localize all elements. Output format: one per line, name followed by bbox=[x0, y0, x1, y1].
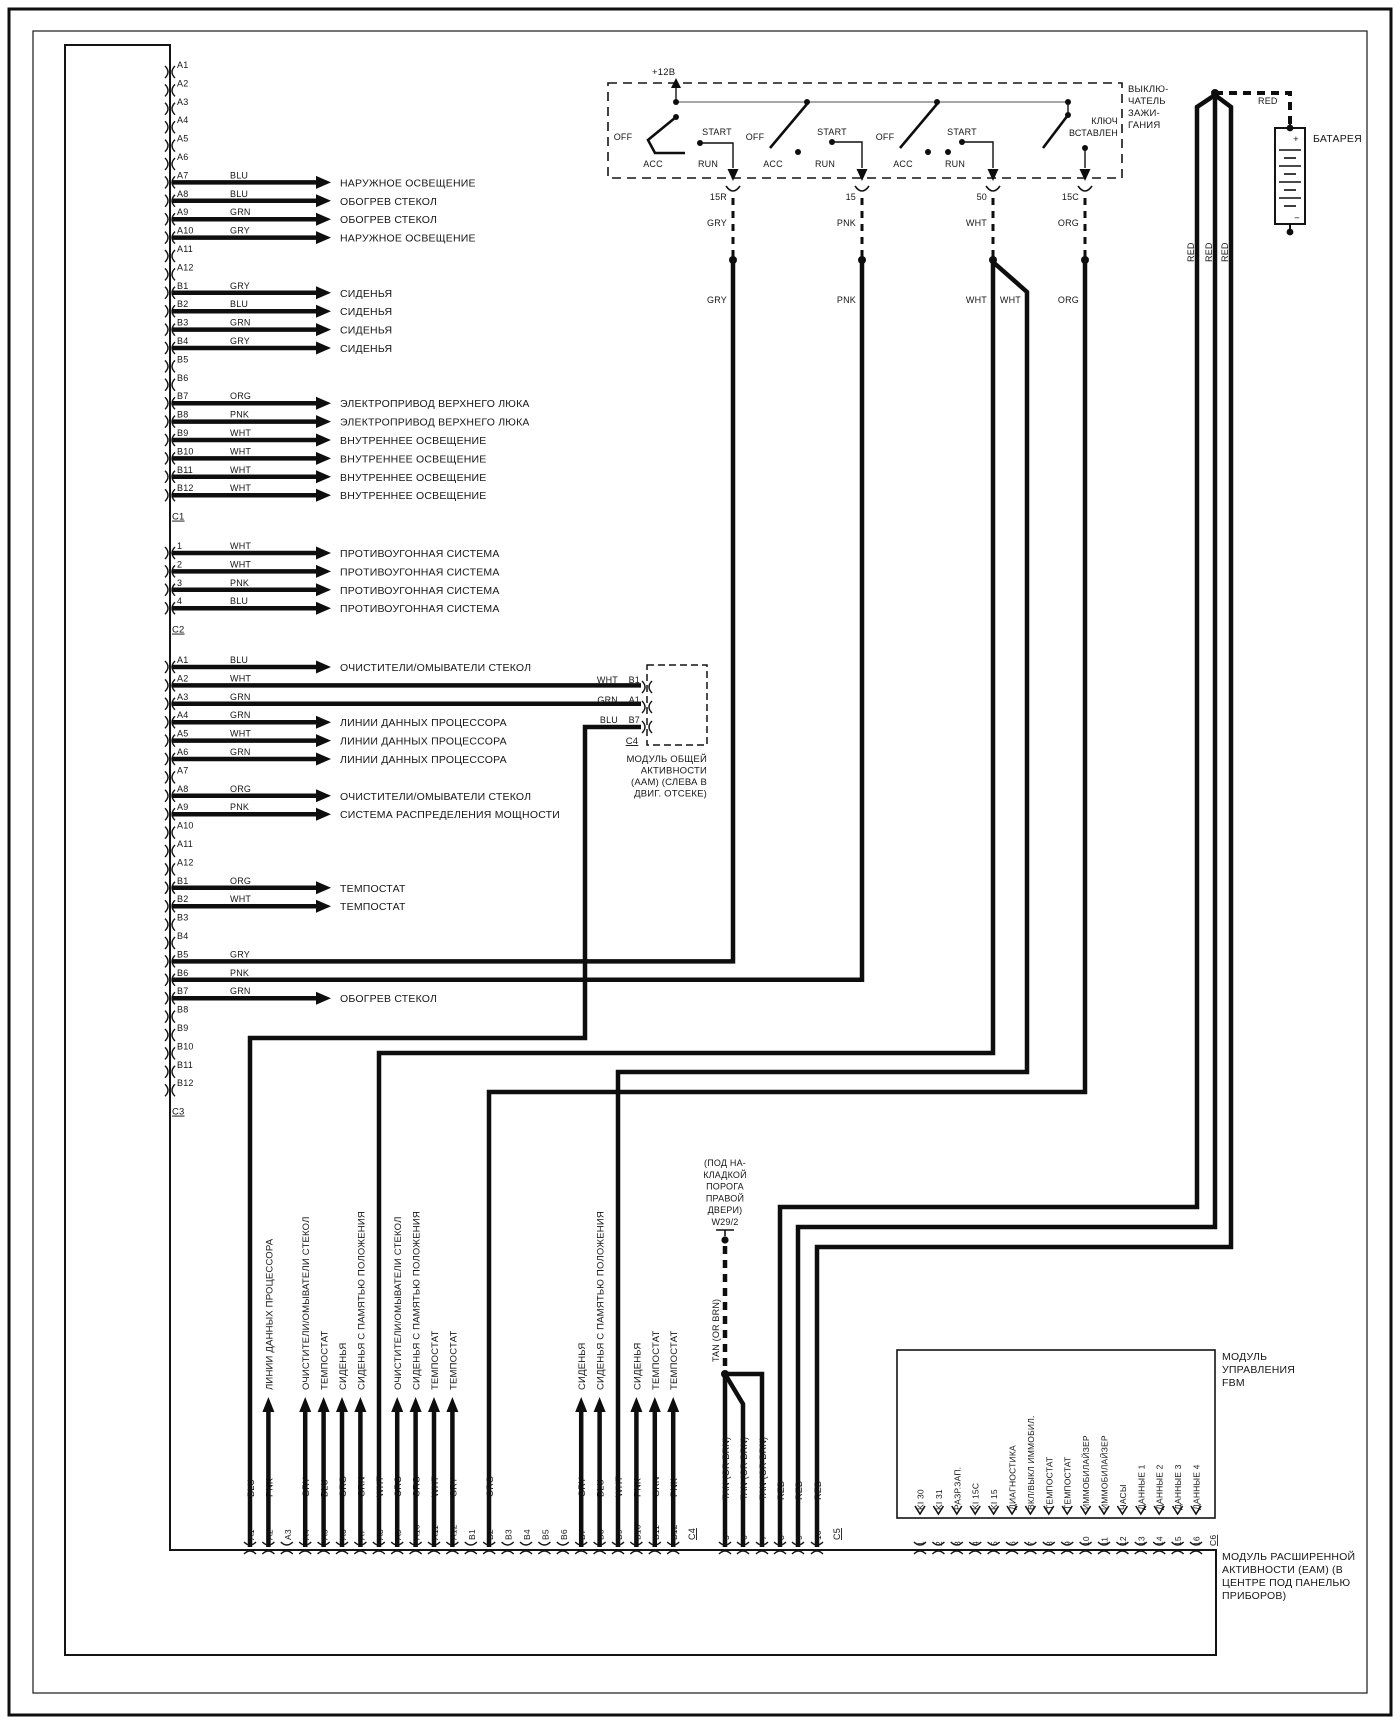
pin-id: B10 bbox=[177, 446, 194, 456]
pin-bracket bbox=[165, 158, 168, 170]
circuit-label: ОЧИСТИТЕЛИ/ОМЫВАТЕЛИ СТЕКОЛ bbox=[340, 791, 531, 803]
pin-id: B6 bbox=[559, 1529, 569, 1540]
circuit-label: ЭЛЕКТРОПРИВОД ВЕРХНЕГО ЛЮКА bbox=[340, 417, 530, 429]
pin-id: 9 bbox=[794, 1535, 804, 1540]
eam-module-label: МОДУЛЬ РАСШИРЕННОЙ bbox=[1222, 1550, 1355, 1563]
terminal-arrow-icon bbox=[728, 169, 739, 181]
pin-bracket bbox=[165, 416, 168, 428]
circuit-label: ОБОГРЕВ СТЕКОЛ bbox=[340, 214, 437, 226]
junction-dot bbox=[721, 1236, 728, 1243]
pin-id: A1 bbox=[629, 695, 640, 705]
pin-bracket bbox=[172, 121, 175, 133]
wire-color-label: RED bbox=[813, 1480, 823, 1500]
fbm-pin-label: ТЕМПОСТАТ bbox=[1063, 1457, 1073, 1510]
pin-id: B3 bbox=[504, 1529, 514, 1540]
pin-id: B5 bbox=[540, 1529, 550, 1540]
arrowhead-icon bbox=[316, 213, 331, 226]
pin-id: B10 bbox=[177, 1041, 194, 1051]
terminal-arrow-icon bbox=[857, 169, 868, 181]
pin-id: B2 bbox=[485, 1529, 495, 1540]
terminal-id: 15R bbox=[710, 192, 727, 202]
junction-dot bbox=[858, 256, 866, 264]
pin-id: B8 bbox=[177, 1005, 188, 1015]
pin-bracket bbox=[165, 140, 168, 152]
wire-color-label: PNK bbox=[230, 410, 249, 420]
battery-label: БАТАРЕЯ bbox=[1313, 133, 1362, 145]
pin-id: A5 bbox=[177, 134, 188, 144]
junction-dot bbox=[1065, 112, 1071, 118]
connector-id: C4 bbox=[626, 736, 639, 747]
pin-bracket bbox=[165, 324, 168, 336]
red-route-wire bbox=[780, 95, 1215, 1547]
pin-bracket bbox=[172, 1066, 175, 1078]
pin-id: B2 bbox=[177, 894, 188, 904]
switch-position-label: START bbox=[817, 127, 847, 137]
pin-bracket bbox=[914, 1551, 926, 1554]
pin-id: B2 bbox=[177, 299, 188, 309]
pin-bracket bbox=[165, 919, 168, 931]
wire-color-label: BLU bbox=[600, 715, 618, 725]
terminal-id: 15C bbox=[1062, 192, 1079, 202]
pin-bracket bbox=[667, 1551, 679, 1554]
switch-position-label: OFF bbox=[614, 132, 633, 142]
arrowhead-icon bbox=[410, 1397, 422, 1412]
arrowhead-icon bbox=[316, 808, 331, 821]
switch-position-label: RUN bbox=[698, 159, 718, 169]
pin-bracket bbox=[165, 698, 168, 710]
arrowhead-icon bbox=[316, 286, 331, 299]
eam-module-label: АКТИВНОСТИ (ЕАМ) (В bbox=[1222, 1564, 1343, 1576]
pin-bracket bbox=[165, 900, 168, 912]
circuit-label: ВНУТРЕННЕЕ ОСВЕЩЕНИЕ bbox=[340, 435, 487, 447]
arrowhead-icon bbox=[316, 397, 331, 410]
switch-lever bbox=[648, 117, 685, 153]
arrowhead-icon bbox=[318, 1397, 330, 1412]
pin-bracket bbox=[165, 360, 168, 372]
pin-bracket bbox=[557, 1551, 569, 1554]
pin-bracket bbox=[1043, 1551, 1055, 1554]
pin-bracket bbox=[165, 716, 168, 728]
fbm-pin-label: ИММОБИЛАЙЗЕР bbox=[1080, 1435, 1091, 1510]
pin-id: 1 bbox=[177, 541, 182, 551]
pin-bracket bbox=[1061, 1551, 1073, 1554]
aam-module-label: МОДУЛЬ ОБЩЕЙ bbox=[626, 753, 707, 765]
ignition-title: ЧАТЕЛЬ bbox=[1128, 96, 1166, 107]
pin-id: B3 bbox=[177, 913, 188, 923]
wire-color-label: GRN bbox=[230, 207, 251, 217]
fbm-pin-label: ДИАГНОСТИКА bbox=[1008, 1445, 1018, 1510]
junction-dot bbox=[795, 149, 801, 155]
pin-id: B1 bbox=[629, 675, 640, 685]
w29-label: ПОРОГА bbox=[706, 1182, 744, 1192]
pin-id: B1 bbox=[467, 1529, 477, 1540]
pin-bracket bbox=[262, 1551, 274, 1554]
junction-dot bbox=[804, 99, 810, 105]
switch-position-label: ACC bbox=[643, 159, 663, 169]
wire-color-label: WHT bbox=[1000, 295, 1021, 305]
wire-color-label: GRY bbox=[230, 336, 250, 346]
wire-color-label: ORG bbox=[230, 391, 251, 401]
switch-lever bbox=[900, 104, 937, 148]
pin-bracket bbox=[165, 121, 168, 133]
wire-color-label: RED bbox=[1220, 242, 1230, 262]
pin-bracket bbox=[465, 1542, 477, 1545]
pin-id: B1 bbox=[177, 281, 188, 291]
pin-id: A9 bbox=[177, 802, 188, 812]
wire-color-label: ORG bbox=[1058, 295, 1079, 305]
circuit-label: ВНУТРЕННЕЕ ОСВЕЩЕНИЕ bbox=[340, 453, 487, 465]
pin-bracket bbox=[969, 1551, 981, 1554]
pin-bracket bbox=[165, 250, 168, 262]
pin-id: A1 bbox=[177, 60, 188, 70]
pin-bracket bbox=[165, 397, 168, 409]
key-switch-label: ВСТАВЛЕН bbox=[1069, 128, 1118, 138]
w29-label: W29/2 bbox=[711, 1217, 738, 1227]
arrowhead-icon bbox=[262, 1397, 274, 1412]
arrowhead-icon bbox=[316, 547, 331, 560]
pin-bracket bbox=[299, 1551, 311, 1554]
switch-contact-wire bbox=[832, 142, 862, 168]
pin-bracket bbox=[165, 434, 168, 446]
w29-label: ДВЕРИ) bbox=[708, 1205, 743, 1215]
wire-color-label: BLU bbox=[230, 170, 248, 180]
pin-bracket bbox=[165, 342, 168, 354]
fbm-pin-label: РАЗР.ЗАП. bbox=[952, 1467, 962, 1510]
arrowhead-icon bbox=[316, 176, 331, 189]
circuit-label: ПРОТИВОУГОННАЯ СИСТЕМА bbox=[340, 548, 500, 560]
wire-color-label: RED bbox=[776, 1480, 786, 1500]
pin-bracket bbox=[1172, 1551, 1184, 1554]
wire-color-label: WHT bbox=[230, 428, 251, 438]
junction-dot bbox=[925, 149, 931, 155]
pin-bracket bbox=[281, 1551, 293, 1554]
pin-bracket bbox=[165, 305, 168, 317]
pin-id: B11 bbox=[177, 1060, 193, 1070]
pin-id: B5 bbox=[177, 949, 188, 959]
arrowhead-icon bbox=[336, 1397, 348, 1412]
route-wire bbox=[172, 260, 862, 980]
pin-bracket bbox=[172, 66, 175, 78]
circuit-label: ЛИНИИ ДАННЫХ ПРОЦЕССОРА bbox=[340, 717, 507, 729]
pin-bracket bbox=[165, 1084, 168, 1096]
pin-bracket bbox=[630, 1551, 642, 1554]
connector-id: C3 bbox=[172, 1107, 185, 1118]
wiring-diagram-canvas: A1A2A3A4A5A6A7BLUНАРУЖНОЕ ОСВЕЩЕНИЕA8BLU… bbox=[0, 0, 1400, 1724]
fbm-pin-label: KI 31 bbox=[934, 1489, 944, 1510]
pin-bracket bbox=[354, 1551, 366, 1554]
w29-label: КЛАДКОЙ bbox=[703, 1169, 747, 1180]
pin-bracket bbox=[165, 452, 168, 464]
circuit-label: СИДЕНЬЯ С ПАМЯТЬЮ ПОЛОЖЕНИЯ bbox=[596, 1211, 607, 1390]
terminal-id: 50 bbox=[977, 192, 987, 202]
pin-bracket bbox=[1024, 1551, 1036, 1554]
switch-contact-wire bbox=[962, 142, 993, 168]
generated-diagram-layer: A1A2A3A4A5A6A7BLUНАРУЖНОЕ ОСВЕЩЕНИЕA8BLU… bbox=[165, 60, 1362, 1602]
switch-position-label: ACC bbox=[893, 159, 913, 169]
pin-id: A10 bbox=[177, 226, 194, 236]
junction-dot bbox=[729, 256, 737, 264]
pin-bracket bbox=[172, 771, 175, 783]
junction-dot bbox=[1287, 125, 1294, 132]
pin-bracket bbox=[649, 1551, 661, 1554]
pin-bracket bbox=[774, 1551, 786, 1554]
circuit-label: СИДЕНЬЯ bbox=[340, 306, 392, 318]
pin-bracket bbox=[594, 1551, 606, 1554]
red-route-wire bbox=[817, 95, 1231, 1547]
pin-bracket bbox=[165, 882, 168, 894]
pin-bracket bbox=[165, 379, 168, 391]
pin-bracket bbox=[642, 681, 645, 693]
fbm-module-box bbox=[897, 1350, 1215, 1518]
switch-position-label: OFF bbox=[746, 132, 765, 142]
pin-id: A9 bbox=[177, 207, 188, 217]
pin-id: B8 bbox=[177, 410, 188, 420]
pin-id: A11 bbox=[177, 244, 193, 254]
aam-module-label: (ААМ) (СЛЕВА В bbox=[631, 777, 707, 788]
wire-color-label: GRY bbox=[707, 218, 727, 228]
page-outer-border bbox=[9, 9, 1391, 1715]
fbm-pin-label: ДАННЫЕ 3 bbox=[1173, 1464, 1183, 1510]
connector-id: C6 bbox=[1208, 1535, 1218, 1546]
terminal-bracket bbox=[986, 186, 1000, 191]
pin-bracket bbox=[318, 1551, 330, 1554]
wire-color-label: WHT bbox=[614, 1476, 624, 1497]
wire-color-label: GRN bbox=[230, 986, 251, 996]
pin-id: A3 bbox=[177, 97, 188, 107]
pin-id: A7 bbox=[177, 765, 188, 775]
arrowhead-icon bbox=[316, 470, 331, 483]
circuit-label: СИДЕНЬЯ bbox=[338, 1343, 349, 1390]
pin-id: B9 bbox=[177, 1023, 188, 1033]
pin-bracket bbox=[165, 735, 168, 747]
pin-bracket bbox=[649, 681, 652, 693]
pin-bracket bbox=[1153, 1551, 1165, 1554]
fbm-module-label: FBM bbox=[1222, 1377, 1245, 1389]
pin-bracket bbox=[932, 1551, 944, 1554]
fbm-pin-label: ЧАСЫ bbox=[1118, 1484, 1128, 1510]
pin-bracket bbox=[165, 268, 168, 280]
wire-color-label: BLU bbox=[230, 655, 248, 665]
pin-id: 3 bbox=[177, 578, 182, 588]
circuit-label: ПРОТИВОУГОННАЯ СИСТЕМА bbox=[340, 566, 500, 578]
circuit-label: СИСТЕМА РАСПРЕДЕЛЕНИЯ МОЩНОСТИ bbox=[340, 809, 560, 821]
pin-bracket bbox=[172, 863, 175, 875]
pin-bracket bbox=[165, 287, 168, 299]
wire-color-label: TAN (OR BRN) bbox=[721, 1437, 731, 1500]
pin-bracket bbox=[165, 827, 168, 839]
pin-bracket bbox=[502, 1542, 514, 1545]
wire-color-label: TAN (OR BRN) bbox=[758, 1437, 768, 1500]
wire-color-label: WHT bbox=[230, 446, 251, 456]
w29-label: ПРАВОЙ bbox=[706, 1192, 744, 1203]
pin-id: 6 bbox=[739, 1535, 749, 1540]
pin-bracket bbox=[172, 919, 175, 931]
pin-bracket bbox=[172, 1084, 175, 1096]
pin-bracket bbox=[538, 1542, 550, 1545]
terminal-bracket bbox=[726, 186, 740, 191]
pin-bracket bbox=[165, 661, 168, 673]
arrowhead-icon bbox=[299, 1397, 311, 1412]
arrowhead-icon bbox=[316, 434, 331, 447]
pin-bracket bbox=[792, 1551, 804, 1554]
pin-id: A6 bbox=[177, 152, 188, 162]
fbm-pin-label: KI 15 bbox=[989, 1489, 999, 1510]
wire-color-label: WHT bbox=[375, 1476, 385, 1497]
pin-id: A6 bbox=[177, 747, 188, 757]
pin-bracket bbox=[373, 1551, 385, 1554]
ignition-title: ГАНИЯ bbox=[1128, 120, 1160, 131]
terminal-arrow-icon bbox=[1080, 169, 1091, 181]
pin-bracket bbox=[165, 103, 168, 115]
wire-color-label: GRY bbox=[230, 949, 250, 959]
pin-bracket bbox=[165, 937, 168, 949]
pin-bracket bbox=[642, 701, 645, 713]
arrowhead-icon bbox=[316, 734, 331, 747]
pin-bracket bbox=[612, 1551, 624, 1554]
wire-color-label: BLU bbox=[230, 189, 248, 199]
terminal-bracket bbox=[1078, 186, 1092, 191]
circuit-label: СИДЕНЬЯ bbox=[340, 325, 392, 337]
fbm-module-label: МОДУЛЬ bbox=[1222, 1351, 1267, 1363]
arrowhead-icon bbox=[316, 305, 331, 318]
pin-bracket bbox=[165, 679, 168, 691]
pin-id: B4 bbox=[177, 931, 188, 941]
wire-color-label: WHT bbox=[597, 675, 618, 685]
pin-bracket bbox=[165, 471, 168, 483]
switch-position-label: RUN bbox=[945, 159, 965, 169]
pin-id: A11 bbox=[177, 839, 193, 849]
fbm-pin-label: ВКЛ/ВЫКЛ ИММОБИЛ. bbox=[1026, 1415, 1036, 1510]
wire-color-label: RED bbox=[1186, 242, 1196, 262]
pin-id: B1 bbox=[177, 876, 188, 886]
fbm-pin-label: KI 15C bbox=[971, 1483, 981, 1510]
arrowhead-icon bbox=[316, 661, 331, 674]
connector-id: C4 bbox=[687, 1528, 697, 1540]
switch-position-label: ACC bbox=[763, 159, 783, 169]
wire-color-label: WHT bbox=[230, 673, 251, 683]
pin-id: B9 bbox=[177, 428, 188, 438]
pin-id: A7 bbox=[177, 170, 188, 180]
pin-bracket bbox=[557, 1542, 569, 1545]
arrowhead-icon bbox=[316, 342, 331, 355]
pin-bracket bbox=[165, 232, 168, 244]
circuit-label: ТЕМПОСТАТ bbox=[448, 1330, 459, 1390]
pin-id: A3 bbox=[177, 692, 188, 702]
arrowhead-icon bbox=[316, 452, 331, 465]
circuit-label: ОЧИСТИТЕЛИ/ОМЫВАТЕЛИ СТЕКОЛ bbox=[393, 1216, 404, 1390]
switch-position-label: RUN bbox=[815, 159, 835, 169]
arrowhead-icon bbox=[428, 1397, 440, 1412]
wire-color-label: GRY bbox=[230, 226, 250, 236]
pin-bracket bbox=[410, 1551, 422, 1554]
pin-bracket bbox=[281, 1542, 293, 1545]
pin-id: B12 bbox=[177, 1078, 194, 1088]
wire-color-label: BLU bbox=[230, 596, 248, 606]
pin-bracket bbox=[172, 1047, 175, 1059]
wire-color-label: PNK bbox=[837, 295, 856, 305]
wire-color-label: WHT bbox=[230, 729, 251, 739]
aam-module-label: АКТИВНОСТИ bbox=[641, 766, 707, 777]
pin-bracket bbox=[165, 790, 168, 802]
wiring-diagram-page: A1A2A3A4A5A6A7BLUНАРУЖНОЕ ОСВЕЩЕНИЕA8BLU… bbox=[0, 0, 1400, 1724]
wire-color-label: WHT bbox=[230, 894, 251, 904]
eam-module-label: ПРИБОРОВ) bbox=[1222, 1590, 1286, 1602]
fbm-pin-label: ДАННЫЕ 2 bbox=[1155, 1464, 1165, 1510]
pin-id: B5 bbox=[177, 354, 188, 364]
wire-color-label: ORG bbox=[230, 876, 251, 886]
pin-id: A8 bbox=[177, 189, 188, 199]
wire-color-label: GRY bbox=[230, 281, 250, 291]
wire-color-label: WHT bbox=[966, 295, 987, 305]
arrowhead-icon bbox=[316, 489, 331, 502]
fbm-pin-label: KI 30 bbox=[916, 1489, 926, 1510]
pin-bracket bbox=[165, 974, 168, 986]
pin-bracket bbox=[172, 158, 175, 170]
arrowhead-icon bbox=[316, 583, 331, 596]
arrowhead-icon bbox=[316, 992, 331, 1005]
circuit-label: ТЕМПОСТАТ bbox=[340, 901, 406, 913]
key-switch-lever bbox=[1043, 115, 1068, 148]
junction-dot bbox=[1287, 229, 1294, 236]
pin-id: B6 bbox=[177, 373, 188, 383]
pin-bracket bbox=[165, 771, 168, 783]
circuit-label: ЛИНИИ ДАННЫХ ПРОЦЕССОРА bbox=[264, 1238, 275, 1390]
pin-bracket bbox=[165, 845, 168, 857]
arrowhead-icon bbox=[575, 1397, 587, 1412]
pin-id: B9 bbox=[614, 1529, 624, 1540]
pin-id: A1 bbox=[246, 1529, 256, 1540]
pin-bracket bbox=[172, 937, 175, 949]
pin-bracket bbox=[538, 1551, 550, 1554]
pin-id: A4 bbox=[177, 710, 188, 720]
pin-id: B7 bbox=[177, 391, 188, 401]
fbm-pin-label: ДАННЫЕ 4 bbox=[1192, 1464, 1202, 1510]
key-switch-label: КЛЮЧ bbox=[1091, 116, 1118, 126]
switch-position-label: START bbox=[947, 127, 977, 137]
circuit-label: ТЕМПОСТАТ bbox=[320, 1330, 331, 1390]
connector-id: C1 bbox=[172, 512, 185, 523]
circuit-label: НАРУЖНОЕ ОСВЕЩЕНИЕ bbox=[340, 233, 476, 245]
circuit-label: ЛИНИИ ДАННЫХ ПРОЦЕССОРА bbox=[340, 736, 507, 748]
junction-dot bbox=[673, 114, 679, 120]
pin-id: B4 bbox=[177, 336, 188, 346]
wire-color-label: GRN bbox=[597, 695, 618, 705]
circuit-label: СИДЕНЬЯ bbox=[577, 1343, 588, 1390]
pin-bracket bbox=[172, 1029, 175, 1041]
pin-id: A12 bbox=[177, 857, 194, 867]
arrowhead-icon bbox=[316, 602, 331, 615]
junction-dot bbox=[945, 149, 951, 155]
pin-bracket bbox=[719, 1551, 731, 1554]
arrowhead-icon bbox=[316, 565, 331, 578]
pin-id: 7 bbox=[758, 1535, 768, 1540]
pin-bracket bbox=[172, 268, 175, 280]
arrowhead-icon bbox=[316, 753, 331, 766]
pin-id: A4 bbox=[177, 115, 188, 125]
supply-label: +12В bbox=[652, 67, 675, 78]
circuit-label: СИДЕНЬЯ С ПАМЯТЬЮ ПОЛОЖЕНИЯ bbox=[412, 1211, 423, 1390]
pin-id: A2 bbox=[177, 78, 188, 88]
fbm-pin-label: ИММОБИЛАЙЗЕР bbox=[1099, 1435, 1110, 1510]
circuit-label: ТЕМПОСТАТ bbox=[669, 1330, 680, 1390]
pin-bracket bbox=[811, 1551, 823, 1554]
junction-dot bbox=[934, 99, 940, 105]
pin-bracket bbox=[165, 1029, 168, 1041]
circuit-label: НАРУЖНОЕ ОСВЕЩЕНИЕ bbox=[340, 177, 476, 189]
arrowhead-icon bbox=[354, 1397, 366, 1412]
fbm-pin-label: ДАННЫЕ 1 bbox=[1136, 1464, 1146, 1510]
wire-color-label: WHT bbox=[230, 559, 251, 569]
